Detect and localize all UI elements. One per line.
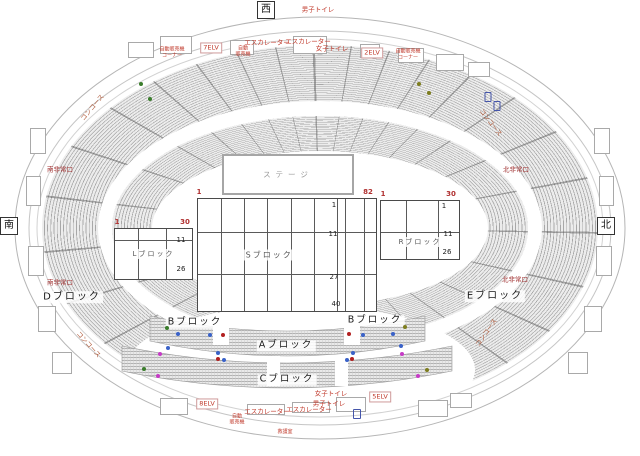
booth	[568, 352, 588, 374]
booth	[26, 176, 41, 206]
map-label: 救護室	[277, 430, 292, 436]
aisle-marker-dot	[156, 374, 160, 378]
map-label: 5ELV	[369, 391, 391, 402]
aisle-marker-dot	[403, 325, 407, 329]
aisle-marker-dot	[400, 352, 404, 356]
map-label: 自動 販売機	[229, 414, 244, 426]
booth	[468, 62, 490, 77]
r-block-seat-start: 1	[381, 190, 386, 198]
booth	[450, 393, 472, 408]
s-row-number: 40	[332, 300, 341, 308]
map-label: 2ELV	[361, 47, 383, 58]
s-row-number: 11	[329, 230, 338, 238]
r-row-number: 11	[444, 230, 453, 238]
map-label: 7ELV	[200, 42, 222, 53]
r-block-seat-end: 30	[446, 190, 456, 198]
aisle-marker-dot	[166, 346, 170, 350]
booth	[28, 246, 44, 276]
map-label: 南非常口	[47, 166, 73, 173]
map-label: 8ELV	[196, 398, 218, 409]
aisle-marker-dot	[345, 358, 349, 362]
aisle-marker-dot	[216, 357, 220, 361]
l-block-seat-start: 1	[115, 218, 120, 226]
map-label: 自動 販売機	[235, 46, 250, 58]
map-label: 女子トイレ	[316, 45, 349, 52]
map-label: 自動販売機 コーナー	[395, 49, 420, 61]
l-block-seat-end: 30	[180, 218, 190, 226]
map-label: 男子トイレ	[313, 400, 346, 407]
facility-marker-square	[485, 92, 492, 102]
aisle-marker-dot	[222, 358, 226, 362]
map-label: Cブロック	[258, 375, 317, 386]
aisle-marker-dot	[351, 351, 355, 355]
facility-marker-square	[353, 409, 361, 419]
map-label: エスカレーター	[244, 39, 290, 46]
r-row-number: 26	[443, 248, 452, 256]
aisle-marker-dot	[208, 333, 212, 337]
aisle-marker-dot	[427, 91, 431, 95]
aisle-marker-dot	[221, 333, 225, 337]
aisle-marker-dot	[417, 82, 421, 86]
map-label: 男子トイレ	[302, 6, 335, 13]
map-label: Dブロック	[41, 291, 103, 303]
booth	[594, 128, 610, 154]
direction-marker-south: 南	[0, 217, 18, 235]
aisle-marker-dot	[165, 326, 169, 330]
aisle-marker-dot	[176, 332, 180, 336]
s-row-number: 1	[332, 201, 336, 209]
map-label: Bブロック	[346, 316, 405, 327]
map-label: Eブロック	[465, 290, 525, 302]
l-row-number: 11	[177, 236, 186, 244]
booth	[418, 400, 448, 417]
direction-marker-north: 北	[597, 217, 615, 235]
aisle-marker-dot	[391, 332, 395, 336]
aisle-marker-dot	[139, 82, 143, 86]
map-label: Aブロック	[257, 341, 316, 352]
map-label: Bブロック	[166, 318, 225, 329]
booth	[584, 306, 602, 332]
booth	[436, 54, 464, 71]
s-block-seat-end: 82	[363, 188, 373, 196]
facility-marker-square	[494, 101, 501, 111]
aisle-marker-dot	[148, 97, 152, 101]
aisle-marker-dot	[347, 332, 351, 336]
booth	[599, 176, 614, 206]
l-row-number: 26	[177, 265, 186, 273]
aisle-marker-dot	[361, 333, 365, 337]
aisle-marker-dot	[216, 351, 220, 355]
s-block: Sブロック	[197, 198, 377, 312]
l-block-label: Lブロック	[131, 249, 177, 259]
r-row-number: 1	[442, 202, 446, 210]
booth	[38, 306, 56, 332]
aisle-marker-dot	[158, 352, 162, 356]
map-label: 南非常口	[47, 279, 73, 286]
map-label: 女子トイレ	[315, 390, 348, 397]
r-block-label: Rブロック	[397, 237, 444, 247]
stage: ステージ	[222, 154, 354, 195]
aisle-marker-dot	[399, 344, 403, 348]
map-label: 北非常口	[503, 166, 529, 173]
booth	[596, 246, 612, 276]
map-label: 自動販売機 コーナー	[159, 47, 184, 59]
direction-marker-west: 西	[257, 1, 275, 19]
aisle-marker-dot	[416, 374, 420, 378]
aisle-marker-dot	[142, 367, 146, 371]
map-label: 北非常口	[502, 276, 528, 283]
booth	[160, 398, 188, 415]
s-block-seat-start: 1	[197, 188, 202, 196]
s-block-label: Sブロック	[244, 250, 295, 261]
aisle-marker-dot	[425, 368, 429, 372]
stage-label: ステージ	[263, 169, 313, 180]
s-row-number: 27	[330, 273, 339, 281]
map-label: エスカレーター	[244, 408, 290, 415]
booth	[128, 42, 154, 58]
aisle-marker-dot	[350, 357, 354, 361]
booth	[30, 128, 46, 154]
arena-seating-map: ステージ Sブロック 1 82 1 11 27 40 Lブロック 1 30 11…	[0, 0, 640, 456]
booth	[52, 352, 72, 374]
